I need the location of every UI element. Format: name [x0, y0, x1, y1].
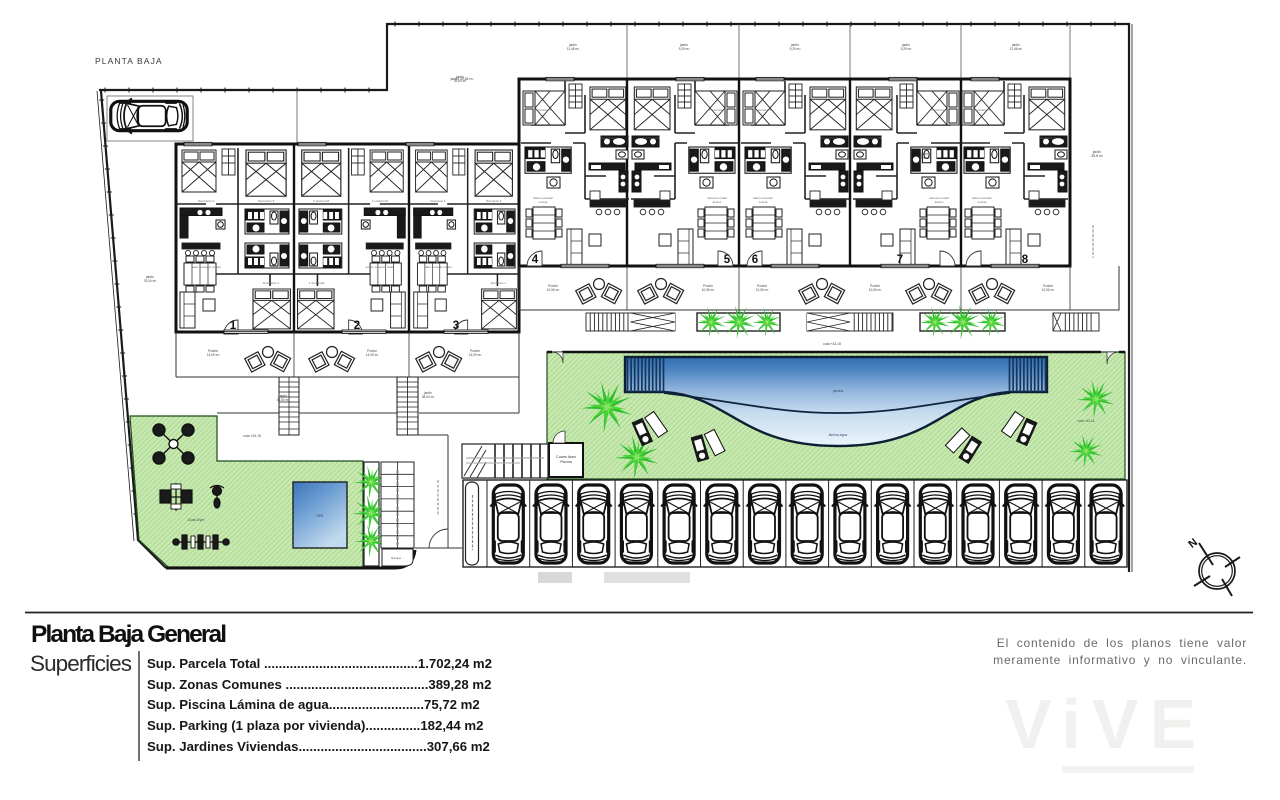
svg-text:Salon comedor cocina: Salon comedor cocina	[365, 265, 394, 269]
svg-text:Cuarto Aseo: Cuarto Aseo	[556, 455, 576, 459]
svg-text:Dormitorio 1: Dormitorio 1	[308, 281, 324, 285]
svg-text:PLANTA BAJA: PLANTA BAJA	[95, 56, 163, 66]
svg-text:Sup. Jardines Viviendas.......: Sup. Jardines Viviendas.................…	[147, 739, 490, 754]
svg-text:Dormitorio 2: Dormitorio 2	[601, 136, 618, 140]
svg-text:38,04 m²: 38,04 m²	[422, 395, 435, 399]
svg-text:Sup. Piscina Lámina de agua...: Sup. Piscina Lámina de agua.............…	[147, 697, 480, 712]
svg-text:Piscina: Piscina	[560, 460, 572, 464]
svg-text:Dormitorio 2: Dormitorio 2	[865, 136, 882, 140]
svg-text:Dormitorio 1: Dormitorio 1	[709, 108, 726, 112]
svg-text:cota +43,15: cota +43,15	[823, 342, 841, 346]
svg-text:meramente informativo y no vin: meramente informativo y no vinculante.	[993, 653, 1247, 667]
svg-text:Dormitorio 2: Dormitorio 2	[1040, 136, 1057, 140]
svg-text:Dormitorio 2: Dormitorio 2	[372, 199, 388, 203]
svg-text:Salon comedor cocina: Salon comedor cocina	[424, 265, 452, 269]
svg-text:5: 5	[724, 254, 731, 266]
svg-text:Dormitorio 1: Dormitorio 1	[491, 281, 506, 285]
svg-text:Dormitorio 1: Dormitorio 1	[755, 108, 772, 112]
svg-text:Planta Baja General: Planta Baja General	[31, 621, 227, 648]
svg-text:Dormitorio 1: Dormitorio 1	[535, 108, 552, 112]
svg-text:13,09 m²: 13,09 m²	[469, 353, 482, 357]
svg-text:El contenido de los planos tie: El contenido de los planos tiene valor	[997, 636, 1247, 650]
svg-text:Dormitorio 2: Dormitorio 2	[430, 199, 445, 203]
svg-text:9,29 m²: 9,29 m²	[901, 47, 912, 51]
svg-text:cocina: cocina	[934, 200, 943, 204]
svg-text:Dormitorio 3: Dormitorio 3	[258, 199, 275, 203]
svg-text:Dormitorio 2: Dormitorio 2	[821, 136, 838, 140]
svg-text:14,09 m²: 14,09 m²	[207, 353, 220, 357]
svg-text:35,8 m²: 35,8 m²	[1091, 154, 1103, 158]
svg-text:cota +43,15: cota +43,15	[243, 434, 261, 438]
svg-text:14,09 m²: 14,09 m²	[366, 353, 379, 357]
svg-text:39,84 m²: 39,84 m²	[454, 79, 467, 83]
svg-text:Rampa: Rampa	[391, 556, 401, 560]
svg-text:Dormitorio 1: Dormitorio 1	[931, 108, 948, 112]
svg-text:cocina: cocina	[759, 200, 768, 204]
svg-text:76,04 m²: 76,04 m²	[144, 279, 157, 283]
svg-text:Dormitorio 2: Dormitorio 2	[198, 199, 215, 203]
svg-text:Zona Gym: Zona Gym	[188, 518, 205, 522]
svg-text:cocina: cocina	[978, 200, 987, 204]
svg-text:36,50 m²: 36,50 m²	[277, 398, 290, 402]
svg-text:10,06 m²: 10,06 m²	[869, 288, 882, 292]
svg-text:cocina: cocina	[712, 200, 721, 204]
svg-text:Dormitorio 2: Dormitorio 2	[643, 136, 660, 140]
svg-text:piscina: piscina	[833, 389, 844, 393]
svg-text:Superficies: Superficies	[30, 651, 132, 676]
svg-text:10,06 m²: 10,06 m²	[756, 288, 769, 292]
svg-text:Sup. Parking (1 plaza por vivi: Sup. Parking (1 plaza por vivienda).....…	[147, 718, 483, 733]
svg-text:cota +43,15: cota +43,15	[1078, 419, 1095, 423]
svg-text:10,06 m²: 10,06 m²	[1042, 288, 1055, 292]
svg-text:Salon comedor cocina: Salon comedor cocina	[191, 265, 221, 269]
svg-text:Dormitorio 1: Dormitorio 1	[263, 281, 280, 285]
svg-text:Sup. Zonas Comunes ...........: Sup. Zonas Comunes .....................…	[147, 677, 491, 692]
svg-text:36,84 m²: 36,84 m²	[919, 156, 932, 160]
svg-text:9,29 m²: 9,29 m²	[679, 47, 690, 51]
svg-text:10,06 m²: 10,06 m²	[547, 288, 560, 292]
svg-text:ViVE: ViVE	[1005, 685, 1207, 763]
svg-text:9,29 m²: 9,29 m²	[790, 47, 801, 51]
svg-text:lámina agua: lámina agua	[829, 433, 848, 437]
svg-text:11,46 m²: 11,46 m²	[567, 47, 579, 51]
svg-text:Dormitorio 1: Dormitorio 1	[974, 108, 991, 112]
svg-text:4: 4	[532, 254, 539, 266]
svg-text:cocina: cocina	[539, 200, 548, 204]
svg-text:Dormitorio 3: Dormitorio 3	[486, 199, 501, 203]
svg-text:Dormitorio 3: Dormitorio 3	[313, 199, 329, 203]
svg-text:SPA: SPA	[317, 514, 325, 518]
svg-text:10,06 m²: 10,06 m²	[702, 288, 715, 292]
svg-text:Sup. Parcela Total ...........: Sup. Parcela Total .....................…	[147, 656, 492, 671]
svg-text:6: 6	[752, 254, 758, 266]
svg-text:11,46 m²: 11,46 m²	[1010, 47, 1022, 51]
